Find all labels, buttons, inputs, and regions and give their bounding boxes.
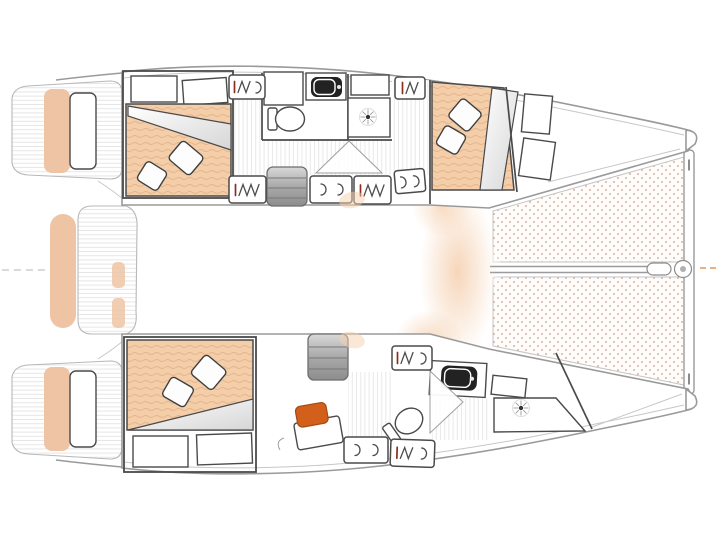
starboard-transom-sheer xyxy=(56,73,122,80)
hull-portlight xyxy=(394,168,426,194)
starboard-bow-tip xyxy=(686,130,697,151)
hull-portlight xyxy=(344,437,388,463)
shower xyxy=(348,98,390,137)
aft-step-pad xyxy=(112,298,125,328)
companionway-steps-starboard xyxy=(267,167,307,206)
bowsprit-pin xyxy=(680,266,686,272)
deck-hatch xyxy=(229,75,265,99)
deck-hatch xyxy=(392,346,432,370)
bowsprit xyxy=(490,261,692,278)
locker xyxy=(264,72,303,105)
transom-locker xyxy=(70,93,96,169)
shelf xyxy=(196,433,252,465)
bowsprit-fitting xyxy=(647,263,671,275)
shower-drain xyxy=(513,400,530,417)
catamaran-floor-plan xyxy=(0,0,720,540)
aft-platform xyxy=(50,181,137,359)
floor-plan-page xyxy=(0,0,720,540)
transom-locker xyxy=(70,371,96,447)
aft-step-pad xyxy=(112,262,125,288)
deck-hatch xyxy=(395,77,425,99)
port-transom-sheer xyxy=(56,460,122,467)
shelf xyxy=(519,138,556,180)
shelf xyxy=(182,77,228,105)
shelf xyxy=(491,375,527,397)
shower-drain xyxy=(360,109,377,126)
shelf xyxy=(521,94,552,134)
port-swim-platform xyxy=(12,361,122,459)
shelf xyxy=(133,436,188,467)
transom-step-cushion xyxy=(44,89,70,173)
desk-stool-cushion xyxy=(295,402,329,428)
shelf xyxy=(351,75,389,95)
starboard-swim-platform xyxy=(12,81,122,179)
toilet xyxy=(268,107,305,131)
washbasin xyxy=(306,73,346,100)
aft-bench-cushion xyxy=(50,214,76,328)
shelf xyxy=(131,76,177,102)
hull-portlight xyxy=(390,439,435,468)
corridor-floor xyxy=(234,98,263,175)
transom-step-cushion xyxy=(44,367,70,451)
hull-portlight xyxy=(229,176,266,203)
